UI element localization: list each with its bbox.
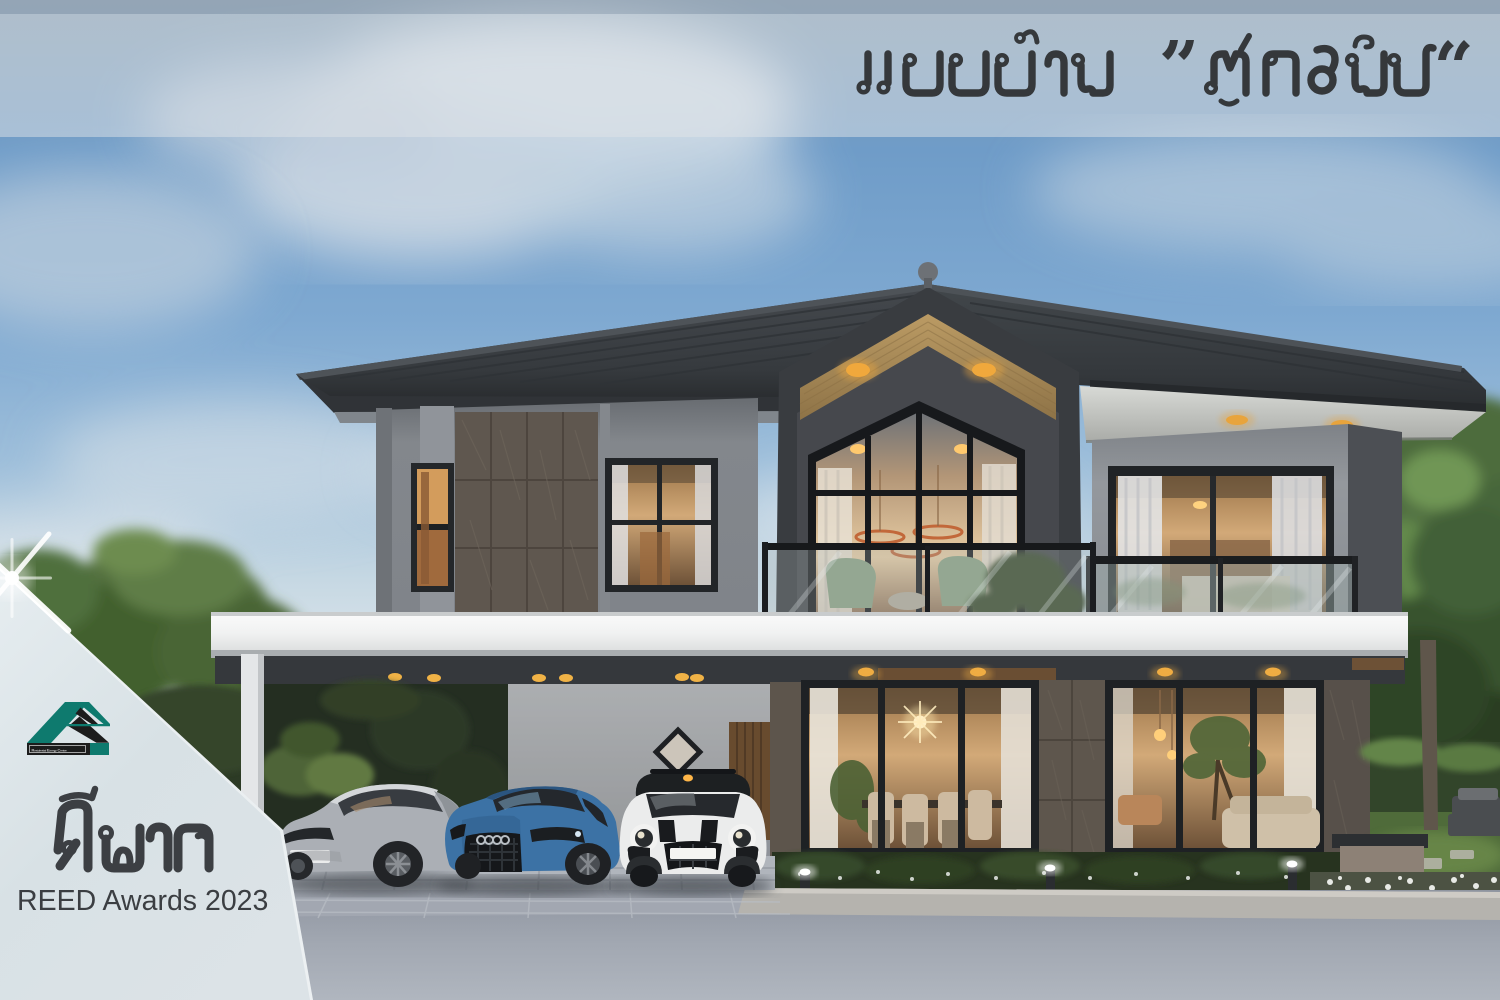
svg-text:Residential Energy Centre: Residential Energy Centre: [32, 747, 68, 752]
svg-text:REED Awards 2023: REED Awards 2023: [17, 885, 268, 917]
